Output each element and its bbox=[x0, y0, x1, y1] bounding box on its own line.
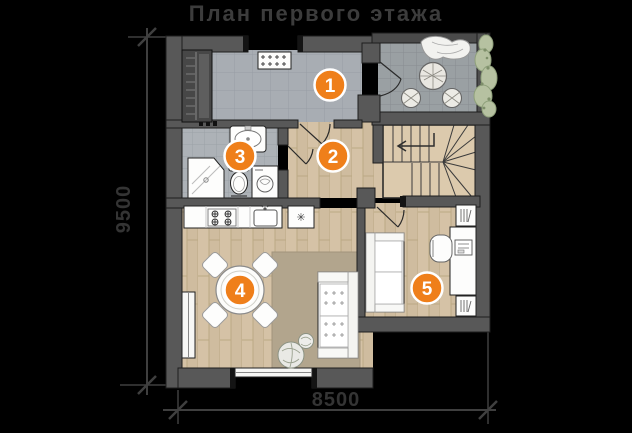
kitchen-counter bbox=[184, 206, 282, 229]
svg-text:2: 2 bbox=[328, 147, 339, 168]
terrace-chair bbox=[443, 89, 462, 108]
computer bbox=[455, 240, 472, 255]
window-bottom-wall bbox=[235, 368, 312, 377]
bookshelf bbox=[456, 205, 476, 226]
room-marker-5: 5 bbox=[412, 273, 443, 304]
bookshelf bbox=[456, 296, 476, 316]
desk bbox=[450, 227, 476, 295]
page-title: План первого этажа bbox=[0, 1, 632, 27]
entrance-doormat bbox=[258, 52, 291, 69]
svg-text:5: 5 bbox=[422, 279, 433, 300]
terrace-chair bbox=[402, 89, 421, 108]
window-left-wall bbox=[182, 292, 195, 358]
svg-text:4: 4 bbox=[235, 281, 246, 302]
room-marker-2: 2 bbox=[318, 141, 349, 172]
washing-machine bbox=[252, 166, 278, 198]
svg-text:1: 1 bbox=[325, 76, 336, 97]
desk-chair bbox=[430, 235, 452, 262]
floor-plan-canvas: План первого этажа bbox=[0, 0, 632, 433]
office-sofa bbox=[366, 233, 404, 312]
svg-text:✳: ✳ bbox=[296, 212, 305, 224]
dimension-width-label: 8500 bbox=[312, 389, 361, 411]
room-marker-4: 4 bbox=[225, 275, 256, 306]
room-marker-3: 3 bbox=[225, 141, 256, 172]
svg-text:3: 3 bbox=[235, 147, 246, 168]
fridge: ✳ bbox=[288, 206, 314, 228]
wardrobe bbox=[182, 50, 212, 122]
terrace-blanket bbox=[421, 36, 470, 59]
living-room-sofa bbox=[318, 272, 358, 358]
room-marker-1: 1 bbox=[315, 70, 346, 101]
shower bbox=[188, 158, 224, 198]
terrace-table bbox=[420, 63, 447, 90]
dimension-height-label: 9500 bbox=[113, 185, 135, 234]
staircase bbox=[383, 125, 476, 198]
floor-plan-drawing: 9500 8500 bbox=[0, 0, 632, 433]
